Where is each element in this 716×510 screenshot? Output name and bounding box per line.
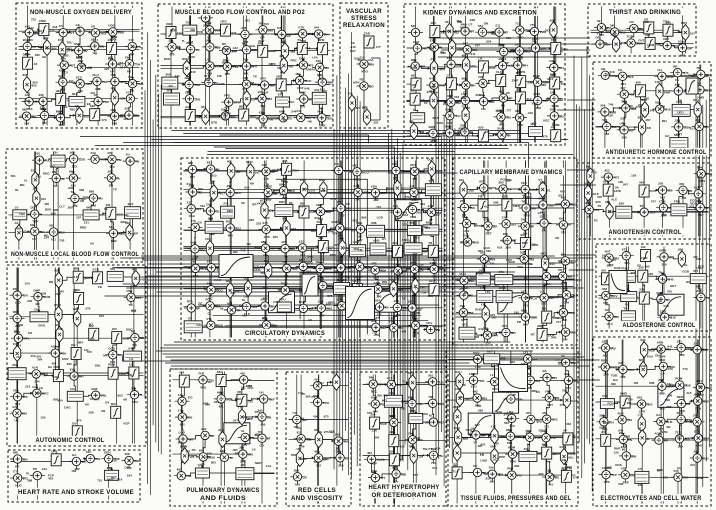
svg-text:FP: FP	[508, 188, 512, 192]
svg-text:MF: MF	[694, 255, 698, 259]
svg-text:.072: .072	[343, 246, 349, 250]
svg-text:687: 687	[462, 53, 467, 57]
svg-text:EF: EF	[188, 316, 192, 320]
svg-text:AGF: AGF	[489, 100, 496, 104]
svg-text:UH: UH	[259, 391, 263, 395]
svg-text:454: 454	[51, 362, 56, 366]
svg-text:PHB: PHB	[195, 114, 202, 118]
svg-text:GNF: GNF	[91, 387, 98, 391]
svg-text:TEH: TEH	[423, 447, 429, 451]
svg-text:019: 019	[420, 202, 425, 206]
svg-text:647: 647	[79, 375, 84, 379]
svg-text:375: 375	[427, 90, 432, 94]
svg-text:585: 585	[409, 221, 414, 225]
svg-text:CIRCULATORY DYNAMICS: CIRCULATORY DYNAMICS	[245, 330, 325, 337]
svg-text:NL: NL	[220, 306, 224, 310]
svg-text:111: 111	[50, 29, 55, 33]
svg-text:VHS: VHS	[264, 235, 270, 239]
svg-text:510: 510	[264, 22, 269, 26]
svg-text:MRN: MRN	[401, 400, 408, 404]
svg-text:TBG: TBG	[69, 108, 76, 112]
svg-text:060: 060	[205, 39, 210, 43]
svg-text:575: 575	[367, 411, 372, 415]
svg-text:366: 366	[506, 115, 511, 119]
svg-text:832: 832	[23, 73, 28, 77]
svg-text:DNS: DNS	[539, 197, 545, 201]
svg-text:TKA: TKA	[116, 478, 123, 482]
svg-text:TN: TN	[135, 160, 139, 164]
svg-text:RSS: RSS	[438, 421, 444, 425]
svg-text:KRO: KRO	[610, 366, 617, 370]
svg-text:BN: BN	[272, 168, 276, 172]
svg-text:PL: PL	[26, 472, 30, 476]
svg-text:FGK: FGK	[641, 256, 648, 260]
svg-text:VUL: VUL	[432, 466, 438, 470]
svg-text:.681: .681	[216, 370, 222, 374]
svg-text:949: 949	[321, 189, 326, 193]
svg-text:.112: .112	[637, 412, 643, 416]
svg-text:.820: .820	[505, 246, 511, 250]
svg-text:409: 409	[629, 93, 634, 97]
svg-text:AL: AL	[317, 109, 321, 113]
svg-text:RVV: RVV	[618, 411, 624, 415]
svg-text:EH: EH	[655, 353, 659, 357]
svg-text:040: 040	[86, 205, 91, 209]
svg-text:.380: .380	[130, 386, 136, 390]
svg-text:526: 526	[276, 74, 281, 78]
svg-text:.559: .559	[517, 265, 523, 269]
svg-text:477: 477	[636, 105, 641, 109]
svg-text:GHB: GHB	[696, 476, 704, 480]
svg-text:.276: .276	[531, 122, 537, 126]
svg-text:.684: .684	[25, 53, 31, 57]
svg-text:.313: .313	[53, 375, 59, 379]
svg-text:712: 712	[372, 330, 377, 334]
svg-text:.374: .374	[205, 455, 211, 459]
svg-text:040: 040	[478, 327, 483, 331]
svg-text:669: 669	[22, 412, 27, 416]
svg-text:380: 380	[541, 83, 546, 87]
svg-text:.977: .977	[463, 436, 469, 440]
svg-text:228: 228	[639, 288, 644, 292]
svg-text:TCO: TCO	[627, 35, 634, 39]
svg-text:PAS: PAS	[27, 107, 33, 111]
svg-text:938: 938	[401, 472, 406, 476]
svg-text:.640: .640	[668, 278, 674, 282]
svg-text:.324: .324	[34, 379, 40, 383]
svg-text:CEN: CEN	[394, 263, 400, 267]
svg-text:FHE: FHE	[199, 371, 205, 375]
svg-text:GTK: GTK	[298, 25, 305, 29]
svg-text:GPF: GPF	[604, 480, 610, 484]
svg-text:347: 347	[278, 93, 283, 97]
svg-text:.640: .640	[693, 393, 699, 397]
svg-text:CH: CH	[586, 165, 590, 169]
svg-text:VM: VM	[688, 74, 693, 78]
svg-text:405: 405	[224, 105, 229, 109]
svg-text:CDO: CDO	[79, 157, 86, 161]
svg-text:AUTONOMIC CONTROL: AUTONOMIC CONTROL	[36, 437, 105, 444]
svg-text:108: 108	[470, 206, 475, 210]
svg-text:NSC: NSC	[348, 269, 355, 273]
svg-text:.606: .606	[695, 118, 701, 122]
svg-text:LN: LN	[662, 279, 666, 283]
svg-text:.146: .146	[490, 424, 496, 428]
svg-text:EMH: EMH	[610, 74, 617, 78]
svg-text:917: 917	[475, 423, 480, 427]
svg-text:DGA: DGA	[539, 429, 547, 433]
svg-text:OT: OT	[470, 30, 474, 34]
svg-text:396: 396	[205, 403, 210, 407]
svg-text:310: 310	[35, 152, 40, 156]
svg-text:080: 080	[562, 389, 567, 393]
svg-text:BMP: BMP	[34, 288, 41, 292]
svg-text:177: 177	[376, 45, 381, 49]
svg-text:157: 157	[291, 227, 296, 231]
svg-text:OED: OED	[659, 358, 666, 362]
svg-text:599: 599	[599, 425, 604, 429]
svg-text:400: 400	[44, 202, 49, 206]
svg-text:EL: EL	[547, 189, 551, 193]
svg-text:667: 667	[524, 276, 529, 280]
svg-text:CTL: CTL	[298, 391, 304, 395]
svg-text:NOA: NOA	[140, 336, 148, 340]
svg-text:483: 483	[453, 405, 458, 409]
svg-text:OH: OH	[53, 151, 58, 155]
svg-text:858: 858	[84, 114, 89, 118]
svg-text:601: 601	[11, 174, 16, 178]
svg-text:GM: GM	[290, 247, 295, 251]
svg-text:450: 450	[608, 263, 613, 267]
svg-text:RL: RL	[241, 201, 245, 205]
svg-text:NNF: NNF	[111, 239, 117, 243]
svg-text:VT: VT	[206, 317, 210, 321]
svg-text:033: 033	[50, 164, 55, 168]
svg-text:TO: TO	[567, 379, 572, 383]
svg-text:OGE: OGE	[614, 266, 621, 270]
svg-text:DF: DF	[196, 307, 200, 311]
svg-text:.442: .442	[242, 76, 248, 80]
svg-text:.218: .218	[670, 316, 676, 320]
svg-text:SL: SL	[77, 27, 81, 31]
svg-text:780: 780	[383, 288, 388, 292]
svg-text:GG: GG	[369, 85, 374, 89]
svg-text:CS: CS	[215, 210, 219, 214]
svg-text:GML: GML	[334, 302, 341, 306]
svg-text:.431: .431	[89, 91, 95, 95]
svg-text:.329: .329	[489, 262, 495, 266]
svg-text:611: 611	[484, 205, 489, 209]
svg-text:UEG: UEG	[521, 289, 528, 293]
svg-text:093: 093	[645, 265, 650, 269]
svg-text:678: 678	[594, 208, 599, 212]
svg-text:247: 247	[233, 418, 238, 422]
svg-text:BPD: BPD	[519, 70, 526, 74]
svg-text:.842: .842	[535, 106, 541, 110]
svg-text:ESB: ESB	[624, 435, 631, 439]
svg-text:.222: .222	[438, 380, 444, 384]
svg-text:GMM: GMM	[552, 123, 560, 127]
svg-text:VSS: VSS	[643, 20, 649, 24]
svg-text:851: 851	[408, 395, 413, 399]
svg-text:058: 058	[483, 327, 488, 331]
svg-text:OT: OT	[234, 305, 238, 309]
svg-text:.960: .960	[68, 186, 74, 190]
svg-text:992: 992	[473, 390, 478, 394]
svg-text:.779: .779	[682, 367, 688, 371]
svg-text:NRT: NRT	[547, 403, 553, 407]
svg-text:RAH: RAH	[454, 426, 461, 430]
svg-text:CHR: CHR	[413, 40, 420, 44]
svg-text:AN: AN	[267, 415, 271, 419]
svg-text:785: 785	[344, 440, 349, 444]
svg-text:DSB: DSB	[123, 337, 130, 341]
svg-text:ELR: ELR	[690, 127, 697, 131]
svg-text:.295: .295	[438, 132, 444, 136]
svg-text:312: 312	[511, 222, 516, 226]
svg-text:VBK: VBK	[118, 30, 125, 34]
svg-text:523: 523	[689, 204, 694, 208]
svg-text:954: 954	[657, 300, 662, 304]
svg-text:RBE: RBE	[686, 419, 692, 423]
svg-text:205: 205	[23, 395, 28, 399]
svg-text:EF: EF	[83, 277, 87, 281]
svg-text:RP: RP	[574, 379, 578, 383]
svg-text:012: 012	[242, 87, 247, 91]
svg-text:688: 688	[89, 190, 94, 194]
svg-text:.681: .681	[679, 182, 685, 186]
svg-text:ATN: ATN	[377, 458, 383, 462]
svg-text:560: 560	[261, 271, 266, 275]
svg-text:351: 351	[464, 291, 469, 295]
svg-text:.544: .544	[291, 109, 297, 113]
svg-text:.695: .695	[282, 159, 288, 163]
svg-text:.688: .688	[371, 221, 377, 225]
svg-text:.804: .804	[373, 435, 379, 439]
svg-text:OET: OET	[486, 231, 492, 235]
svg-text:LUL: LUL	[540, 289, 546, 293]
svg-text:175: 175	[439, 268, 444, 272]
svg-text:BO: BO	[686, 280, 691, 284]
svg-text:GS: GS	[637, 263, 641, 267]
svg-text:259: 259	[542, 411, 547, 415]
svg-text:CH: CH	[32, 385, 36, 389]
svg-text:LKD: LKD	[15, 301, 22, 305]
svg-text:KL: KL	[429, 414, 433, 418]
svg-text:.909: .909	[69, 150, 75, 154]
svg-text:GNO: GNO	[79, 63, 87, 67]
svg-text:VDU: VDU	[371, 184, 377, 188]
svg-text:.124: .124	[43, 235, 49, 239]
svg-text:MSA: MSA	[544, 282, 552, 286]
svg-text:863: 863	[110, 267, 115, 271]
svg-text:860: 860	[521, 309, 526, 313]
svg-text:RE: RE	[522, 200, 526, 204]
svg-text:751: 751	[97, 479, 102, 483]
svg-text:.667: .667	[698, 213, 704, 217]
svg-text:NGR: NGR	[508, 260, 516, 264]
svg-text:LFL: LFL	[523, 351, 529, 355]
svg-text:.953: .953	[647, 403, 653, 407]
svg-text:FBK: FBK	[60, 352, 67, 356]
svg-text:UOS: UOS	[571, 331, 578, 335]
svg-text:DFV: DFV	[255, 410, 261, 414]
svg-text:.921: .921	[213, 400, 219, 404]
svg-text:LP: LP	[661, 372, 665, 376]
svg-text:VGO: VGO	[216, 288, 223, 292]
svg-text:NH: NH	[300, 416, 304, 420]
svg-text:FES: FES	[540, 181, 546, 185]
svg-text:LV: LV	[15, 205, 19, 209]
svg-text:UDO: UDO	[108, 24, 115, 28]
svg-text:545: 545	[597, 195, 602, 199]
svg-text:063: 063	[267, 97, 272, 101]
svg-text:GO: GO	[334, 269, 339, 273]
svg-text:511: 511	[534, 74, 539, 78]
svg-text:TP: TP	[113, 187, 117, 191]
svg-text:.145: .145	[484, 130, 490, 134]
svg-text:GV: GV	[269, 209, 273, 213]
svg-text:174: 174	[178, 409, 183, 413]
svg-text:.392: .392	[232, 250, 238, 254]
svg-text:205: 205	[660, 105, 665, 109]
svg-text:GG: GG	[185, 105, 190, 109]
svg-text:ROM: ROM	[675, 377, 683, 381]
svg-text:498: 498	[188, 438, 193, 442]
svg-text:NAB: NAB	[496, 109, 503, 113]
svg-text:AOH: AOH	[51, 345, 58, 349]
svg-text:ALR: ALR	[262, 91, 269, 95]
svg-text:885: 885	[230, 114, 235, 118]
svg-text:.156: .156	[613, 450, 619, 454]
svg-text:762: 762	[621, 100, 626, 104]
svg-text:782: 782	[551, 38, 556, 42]
svg-text:.610: .610	[338, 236, 344, 240]
svg-text:925: 925	[104, 67, 109, 71]
svg-text:MUD: MUD	[305, 79, 313, 83]
svg-text:NT: NT	[666, 298, 670, 302]
svg-text:.658: .658	[281, 39, 287, 43]
svg-text:590: 590	[602, 118, 607, 122]
svg-text:LSA: LSA	[368, 58, 375, 62]
svg-text:148: 148	[217, 74, 222, 78]
svg-text:937: 937	[236, 170, 241, 174]
svg-text:.159: .159	[317, 300, 323, 304]
svg-text:BG: BG	[568, 275, 573, 279]
svg-text:GFV: GFV	[429, 279, 435, 283]
svg-text:140: 140	[531, 207, 536, 211]
svg-text:142: 142	[178, 393, 183, 397]
svg-text:CL: CL	[208, 311, 212, 315]
svg-text:136: 136	[393, 204, 398, 208]
svg-text:183: 183	[71, 469, 76, 473]
svg-text:021: 021	[445, 107, 450, 111]
svg-text:AVO: AVO	[118, 232, 125, 236]
svg-text:571: 571	[602, 394, 607, 398]
svg-text:616: 616	[497, 246, 502, 250]
svg-text:.617: .617	[620, 86, 626, 90]
svg-text:ALN: ALN	[32, 366, 38, 370]
svg-text:NT: NT	[277, 26, 281, 30]
svg-text:174: 174	[320, 251, 325, 255]
svg-text:UKV: UKV	[426, 321, 432, 325]
svg-text:.887: .887	[248, 218, 254, 222]
svg-text:UL: UL	[241, 429, 245, 433]
svg-text:AU: AU	[392, 162, 396, 166]
svg-text:.376: .376	[85, 306, 91, 310]
svg-text:389: 389	[188, 161, 193, 165]
svg-text:.472: .472	[613, 176, 619, 180]
svg-text:NHT: NHT	[251, 65, 257, 69]
svg-text:088: 088	[605, 200, 610, 204]
svg-text:MA: MA	[657, 469, 662, 473]
svg-text:.884: .884	[677, 247, 683, 251]
svg-text:DO: DO	[384, 393, 389, 397]
svg-text:CLO: CLO	[496, 70, 503, 74]
svg-text:419: 419	[123, 117, 128, 121]
svg-text:HNU: HNU	[531, 389, 538, 393]
svg-text:.959: .959	[314, 216, 320, 220]
svg-text:FN: FN	[192, 448, 196, 452]
svg-text:.332: .332	[548, 203, 554, 207]
svg-text:BAD: BAD	[473, 241, 480, 245]
svg-text:NV: NV	[507, 133, 511, 137]
svg-text:NTU: NTU	[541, 252, 547, 256]
svg-text:697: 697	[411, 74, 416, 78]
svg-text:KM: KM	[619, 361, 624, 365]
svg-text:.298: .298	[676, 435, 682, 439]
svg-text:AF: AF	[34, 62, 38, 66]
svg-text:.487: .487	[85, 82, 91, 86]
svg-text:611: 611	[604, 421, 609, 425]
svg-text:BCP: BCP	[299, 300, 305, 304]
svg-text:.401: .401	[637, 28, 643, 32]
svg-text:DV: DV	[105, 401, 109, 405]
svg-text:RLH: RLH	[93, 73, 99, 77]
svg-text:654: 654	[136, 296, 141, 300]
svg-text:HG: HG	[70, 387, 75, 391]
svg-text:.131: .131	[298, 240, 304, 244]
svg-text:396: 396	[380, 191, 385, 195]
svg-text:LT: LT	[267, 437, 271, 441]
svg-text:ODH: ODH	[510, 48, 517, 52]
svg-text:.139: .139	[630, 174, 636, 178]
svg-text:DN: DN	[484, 21, 488, 25]
svg-text:819: 819	[369, 63, 374, 67]
svg-text:HE: HE	[42, 55, 46, 59]
svg-text:214: 214	[306, 270, 311, 274]
svg-text:606: 606	[660, 407, 665, 411]
svg-text:BGP: BGP	[284, 34, 291, 38]
svg-text:ETH: ETH	[337, 297, 343, 301]
svg-text:EL: EL	[402, 379, 406, 383]
svg-text:PKF: PKF	[102, 80, 108, 84]
svg-text:804: 804	[622, 448, 627, 452]
svg-text:944: 944	[314, 26, 319, 30]
svg-text:636: 636	[120, 80, 125, 84]
svg-text:508: 508	[474, 335, 479, 339]
svg-text:TMO: TMO	[436, 121, 443, 125]
svg-text:.403: .403	[226, 184, 232, 188]
svg-text:RM: RM	[614, 315, 619, 319]
svg-text:OKS: OKS	[699, 179, 706, 183]
svg-text:.837: .837	[206, 161, 212, 165]
svg-text:557: 557	[373, 196, 378, 200]
svg-text:158: 158	[400, 444, 405, 448]
svg-text:NT: NT	[531, 333, 535, 337]
svg-text:DGL: DGL	[693, 98, 700, 102]
svg-text:LT: LT	[638, 426, 642, 430]
